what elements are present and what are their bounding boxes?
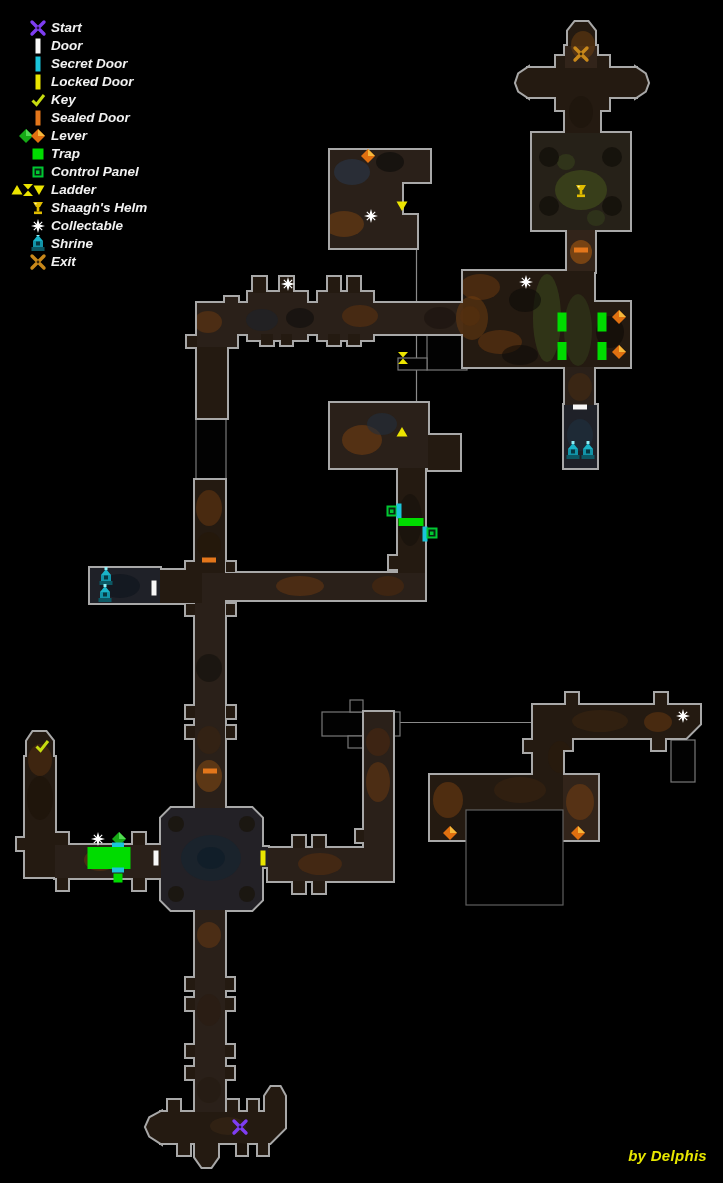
legend-item-lever: Lever [8,127,147,145]
legend-label: Trap [51,145,80,163]
marker-trap [558,313,567,332]
legend-label: Door [51,37,83,55]
helm-icon [33,202,43,214]
legend-label: Sealed Door [51,109,130,127]
ladder-dn-icon [34,186,45,196]
legend-icon-slot [8,235,48,253]
legend-label: Control Panel [51,163,139,181]
marker-sealed-h [574,248,588,253]
legend-item-trap: Trap [8,145,147,163]
marker-sealed-h [203,769,217,774]
marker-locked-v [261,851,266,866]
legend-label: Shrine [51,235,93,253]
unexplored-room [466,810,563,905]
lever-g-icon [19,129,33,143]
legend-item-start: Start [8,19,147,37]
marker-door-h [573,405,587,410]
legend-icon-slot [8,55,48,73]
secret-v-icon [36,57,41,72]
legend-label: Secret Door [51,55,128,73]
legend-label: Ladder [51,181,96,199]
legend-icon-slot [8,199,48,217]
legend-item-key: Key [8,91,147,109]
legend-icon-slot [8,163,48,181]
door-v-icon [36,39,41,54]
legend-icon-slot [8,127,48,145]
legend-label: Exit [51,253,76,271]
sealed-v-icon [36,111,41,126]
lever-o-icon [31,129,45,143]
legend-icon-slot [8,109,48,127]
legend-label: Collectable [51,217,123,235]
marker-trap [88,847,131,869]
marker-door-v [154,851,159,866]
exit-x-icon [32,256,44,268]
marker-trap [558,342,567,360]
marker-trap [114,874,123,883]
locked-v-icon [36,75,41,90]
panel-icon [34,168,43,177]
marker-panel [428,529,437,538]
ladder-up-icon [12,185,23,195]
marker-secret-v [397,504,402,519]
marker-trap [399,518,424,526]
legend-item-door: Door [8,37,147,55]
legend-icon-slot [8,145,48,163]
legend-icon-slot [8,19,48,37]
shrine-icon [32,235,45,251]
legend-item-shrine: Shrine [8,235,147,253]
marker-secret-h [112,868,124,873]
legend: StartDoorSecret DoorLocked DoorKeySealed… [8,19,147,271]
legend-item-collectable: Collectable [8,217,147,235]
legend-item-exit: Exit [8,253,147,271]
marker-door-v [152,581,157,596]
marker-secret-h [112,843,124,848]
marker-sealed-h [202,558,216,563]
legend-item-shaaghs-helm: Shaagh's Helm [8,199,147,217]
legend-label: Lever [51,127,87,145]
legend-item-secret-door: Secret Door [8,55,147,73]
legend-label: Start [51,19,82,37]
legend-icon-slot [8,217,48,235]
legend-icon-slot [8,91,48,109]
key-icon [33,95,45,105]
marker-trap [598,342,607,360]
legend-item-sealed-door: Sealed Door [8,109,147,127]
start-x-icon [32,22,44,34]
marker-trap [598,313,607,332]
star-icon [31,219,45,233]
marker-panel [388,507,397,516]
legend-icon-slot [8,37,48,55]
legend-label: Locked Door [51,73,134,91]
legend-icon-slot [8,73,48,91]
legend-label: Shaagh's Helm [51,199,147,217]
legend-item-locked-door: Locked Door [8,73,147,91]
trap-icon [33,149,44,160]
legend-item-control-panel: Control Panel [8,163,147,181]
legend-label: Key [51,91,76,109]
ladder-x-icon [23,184,33,196]
legend-icon-slot [8,253,48,271]
legend-item-ladder: Ladder [8,181,147,199]
level-map: StartDoorSecret DoorLocked DoorKeySealed… [0,0,723,1183]
credit-text: by Delphis [628,1147,707,1164]
legend-icon-slot [8,181,48,199]
